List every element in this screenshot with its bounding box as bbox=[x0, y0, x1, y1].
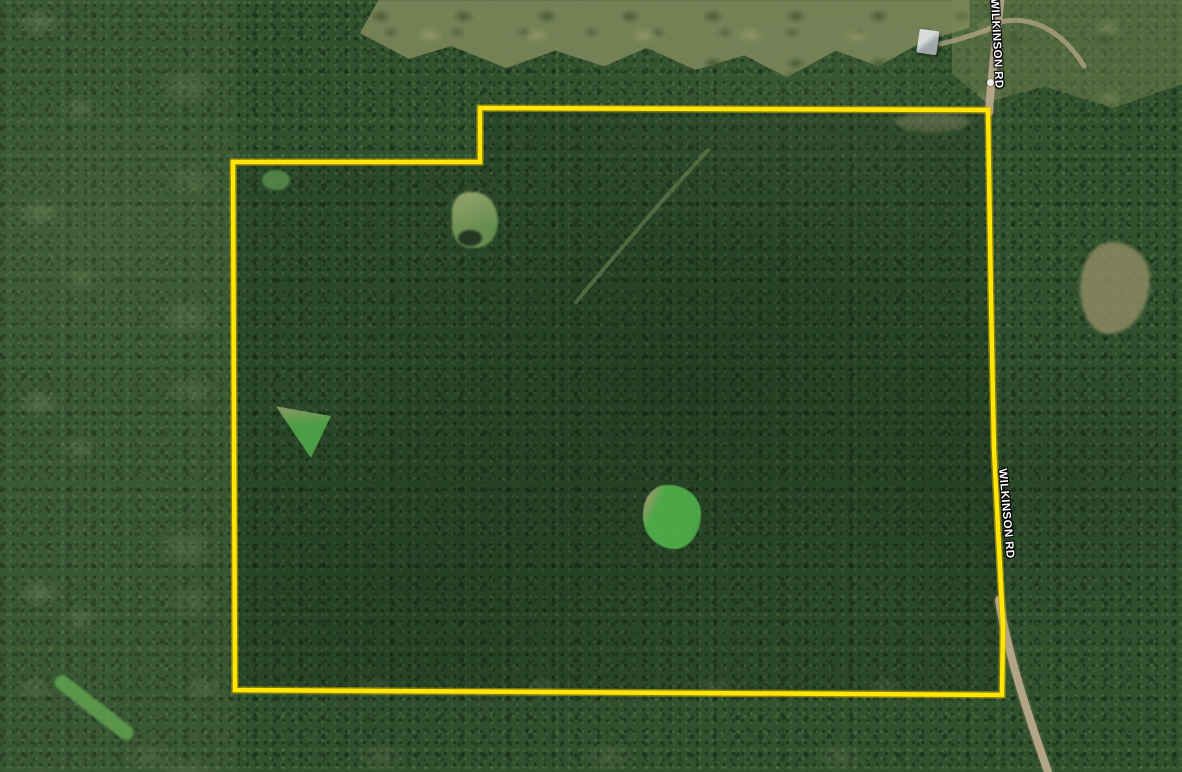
dirt-patch-inside-corner bbox=[895, 112, 970, 132]
house-building bbox=[916, 29, 939, 56]
clearing-top-right-region bbox=[952, 0, 1182, 108]
pond-near-notch bbox=[458, 230, 482, 246]
satellite-map[interactable]: WILKINSON RD WILKINSON RD bbox=[0, 0, 1182, 772]
small-clearing-top-left bbox=[262, 170, 290, 190]
road-marker-dot bbox=[987, 79, 994, 86]
green-field-center bbox=[643, 485, 701, 549]
